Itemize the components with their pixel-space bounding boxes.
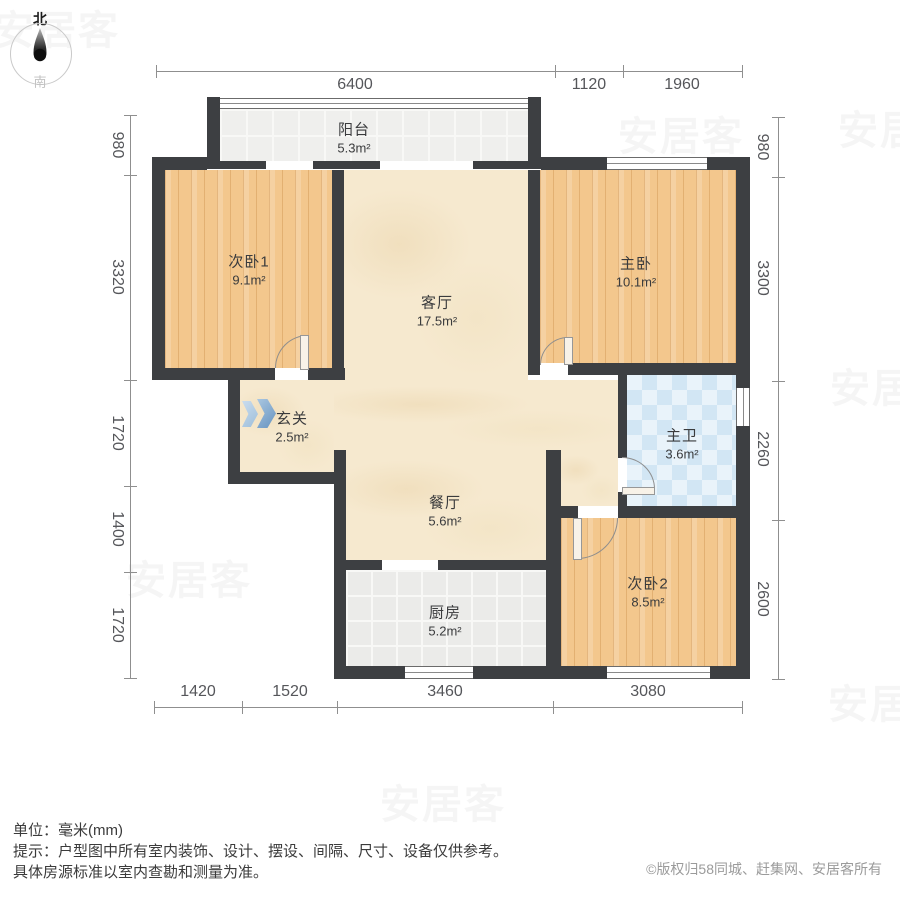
dimension-tick xyxy=(772,679,785,680)
living-room-floor xyxy=(334,380,618,450)
kitchen-window xyxy=(405,666,473,679)
room-name: 次卧1 xyxy=(228,251,269,272)
dimension-tick xyxy=(772,520,785,521)
dimension-tick xyxy=(124,678,137,679)
wall xyxy=(152,368,345,380)
room-label-kitchen: 厨房 5.2m² xyxy=(428,602,461,639)
room-area: 10.1m² xyxy=(616,275,656,290)
room-name: 主卫 xyxy=(665,425,698,446)
tip-note-line1: 提示：户型图中所有室内装饰、设计、摆设、间隔、尺寸、设备仅供参考。 xyxy=(13,841,508,862)
wall xyxy=(546,506,750,518)
balcony-floor xyxy=(220,109,528,162)
wall xyxy=(220,161,266,169)
watermark: 安居客 xyxy=(838,98,900,156)
floorplan-canvas: 安居客 安居客 安居客 安居客 安居客 安居客 安居客 北 南 xyxy=(0,0,900,900)
dimension-tick xyxy=(242,701,243,714)
room-label-master-bath: 主卫 3.6m² xyxy=(665,425,698,462)
dimension-tick xyxy=(623,65,624,78)
dimension-line-left xyxy=(130,115,131,678)
dimension-tick xyxy=(553,701,554,714)
watermark: 安居客 xyxy=(126,548,252,606)
master-bedroom-window xyxy=(607,157,707,170)
room-area: 9.1m² xyxy=(228,273,269,288)
room-name: 玄关 xyxy=(275,408,308,429)
dimension-label: 2260 xyxy=(753,431,771,467)
dimension-label: 6400 xyxy=(337,76,373,94)
room-name: 次卧2 xyxy=(627,573,668,594)
wall xyxy=(228,378,240,484)
dimension-label: 3080 xyxy=(630,683,666,701)
room-label-living-room: 客厅 17.5m² xyxy=(417,292,457,329)
dimension-tick xyxy=(154,701,155,714)
room-area: 5.3m² xyxy=(337,141,370,156)
dimension-line-top xyxy=(156,71,743,72)
wall xyxy=(152,157,165,380)
dimension-tick xyxy=(124,380,137,381)
dimension-tick xyxy=(772,117,785,118)
hallway-floor xyxy=(558,450,618,508)
dimension-tick xyxy=(156,65,157,78)
dimension-label: 1720 xyxy=(108,607,126,643)
dimension-label: 980 xyxy=(108,132,126,159)
dimension-label: 1400 xyxy=(108,511,126,547)
bedroom2-door-leaf xyxy=(573,518,582,560)
room-name: 主卧 xyxy=(616,253,656,274)
room-name: 餐厅 xyxy=(428,492,461,513)
door-opening xyxy=(578,506,618,518)
room-label-entry: 玄关 2.5m² xyxy=(275,408,308,445)
dimension-label: 1420 xyxy=(180,683,216,701)
wall xyxy=(528,97,541,169)
wall xyxy=(541,157,607,170)
room-area: 2.5m² xyxy=(275,430,308,445)
dimension-tick xyxy=(124,572,137,573)
room-name: 厨房 xyxy=(428,602,461,623)
room-area: 3.6m² xyxy=(665,447,698,462)
room-area: 5.2m² xyxy=(428,624,461,639)
dimension-tick xyxy=(124,115,137,116)
room-area: 8.5m² xyxy=(627,595,668,610)
wall xyxy=(313,161,380,169)
dimension-label: 1960 xyxy=(664,76,700,94)
wall xyxy=(228,472,346,484)
dimension-tick xyxy=(124,486,137,487)
doorway-opening xyxy=(382,560,438,570)
balcony-sliding-opening xyxy=(380,161,473,169)
dimension-label: 980 xyxy=(753,134,771,161)
dimension-label: 1120 xyxy=(572,76,606,94)
room-label-dining-room: 餐厅 5.6m² xyxy=(428,492,461,529)
watermark: 安居客 xyxy=(830,356,900,414)
compass-south-label: 南 xyxy=(33,72,46,91)
master-bath-door-leaf xyxy=(622,487,655,495)
bedroom2-window xyxy=(607,666,710,679)
room-label-bedroom2: 次卧2 8.5m² xyxy=(627,573,668,610)
wall xyxy=(346,560,548,570)
unit-note: 单位：毫米(mm) xyxy=(13,820,508,841)
room-area: 5.6m² xyxy=(428,514,461,529)
room-name: 客厅 xyxy=(417,292,457,313)
dimension-tick xyxy=(337,701,338,714)
dimension-label: 3320 xyxy=(108,259,126,295)
dimension-tick xyxy=(742,701,743,714)
dimension-tick xyxy=(772,381,785,382)
wall xyxy=(207,97,220,169)
wall xyxy=(546,450,561,679)
tip-note-line2: 具体房源标准以室内查勘和测量为准。 xyxy=(13,862,508,883)
dimension-tick xyxy=(124,175,137,176)
wall xyxy=(332,170,344,380)
wall xyxy=(528,170,540,375)
master-bedroom-door-leaf xyxy=(564,337,573,365)
watermark: 安居客 xyxy=(618,104,744,162)
room-area: 17.5m² xyxy=(417,314,457,329)
dimension-label: 1520 xyxy=(272,683,308,701)
dimension-tick xyxy=(742,65,743,78)
footer-notes: 单位：毫米(mm) 提示：户型图中所有室内装饰、设计、摆设、间隔、尺寸、设备仅供… xyxy=(13,820,508,883)
bedroom1-door-leaf xyxy=(300,335,309,370)
room-label-balcony: 阳台 5.3m² xyxy=(337,119,370,156)
watermark: 安居客 xyxy=(828,672,900,730)
compass-needle-icon xyxy=(29,28,51,66)
master-bath-window xyxy=(736,388,750,426)
dimension-label: 1720 xyxy=(108,415,126,451)
room-label-master-bedroom: 主卧 10.1m² xyxy=(616,253,656,290)
room-name: 阳台 xyxy=(337,119,370,140)
living-room-floor xyxy=(344,170,528,382)
dimension-label: 2600 xyxy=(753,581,771,617)
balcony-opening xyxy=(266,161,313,169)
wall xyxy=(334,450,346,679)
dimension-label: 3300 xyxy=(753,260,771,296)
balcony-window xyxy=(220,98,528,109)
dimension-label: 3460 xyxy=(427,683,463,701)
dimension-tick xyxy=(555,65,556,78)
room-label-bedroom1: 次卧1 9.1m² xyxy=(228,251,269,288)
dimension-tick xyxy=(772,177,785,178)
dimension-line-right xyxy=(778,117,779,679)
copyright-note: ©版权归58同城、赶集网、安居客所有 xyxy=(646,859,882,879)
